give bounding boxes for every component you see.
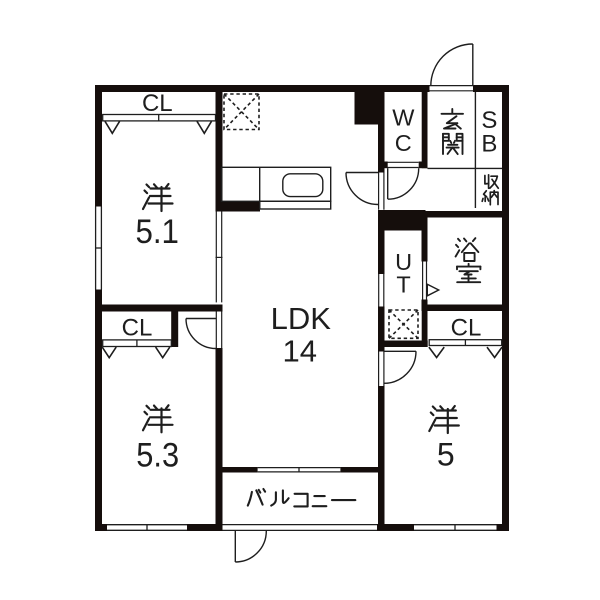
- svg-text:CL: CL: [122, 315, 153, 342]
- svg-text:T: T: [396, 272, 410, 298]
- svg-text:5.1: 5.1: [135, 213, 179, 251]
- svg-text:B: B: [481, 130, 497, 157]
- svg-text:5.3: 5.3: [136, 436, 179, 474]
- svg-text:C: C: [395, 130, 412, 156]
- svg-text:W: W: [392, 105, 415, 131]
- svg-text:14: 14: [283, 334, 317, 369]
- svg-text:CL: CL: [451, 315, 482, 342]
- svg-text:LDK: LDK: [271, 301, 332, 336]
- svg-text:5: 5: [437, 437, 455, 473]
- svg-text:CL: CL: [142, 90, 173, 117]
